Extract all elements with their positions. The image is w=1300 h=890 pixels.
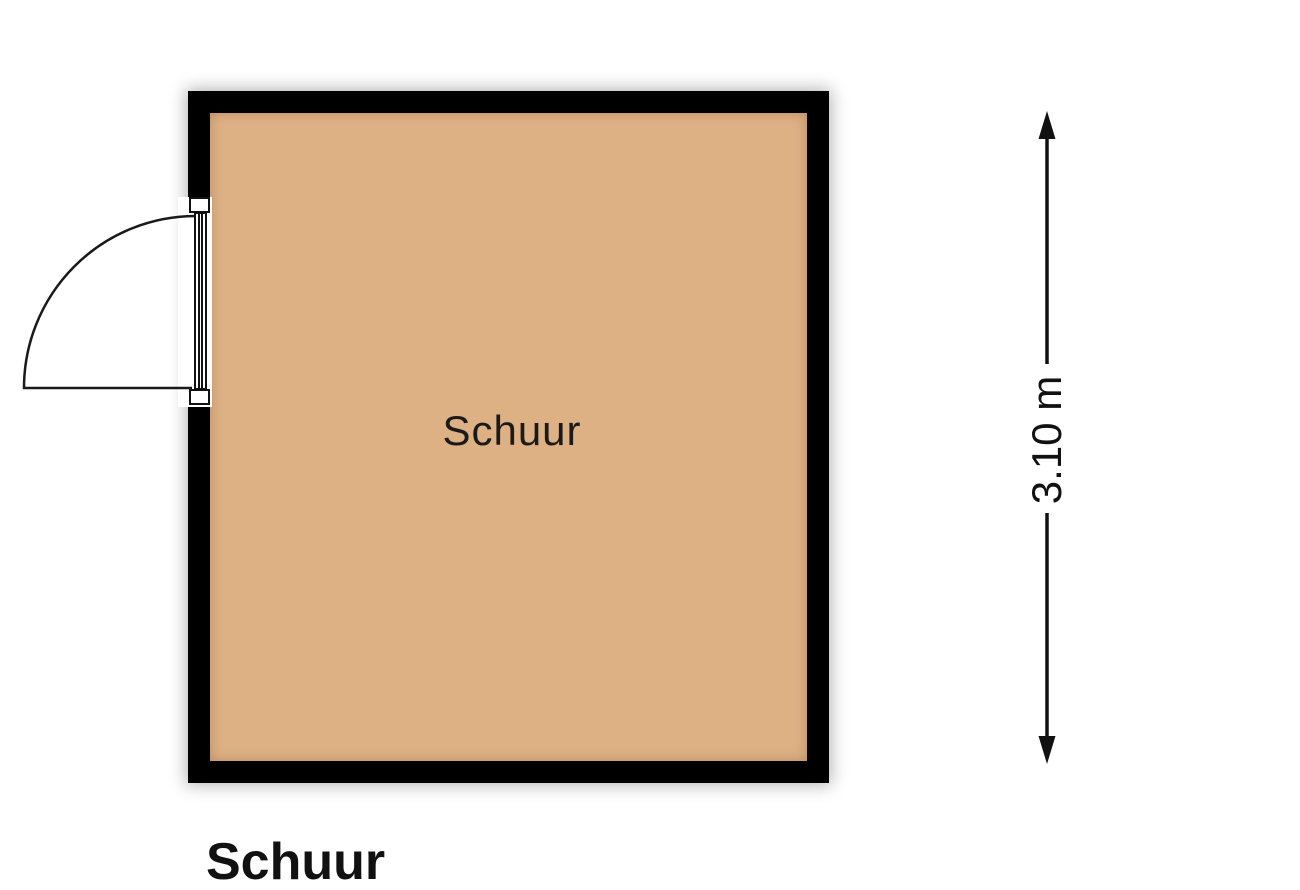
dimension-label: 3.10 m bbox=[1024, 360, 1070, 520]
arrow-head-down-icon bbox=[1039, 736, 1056, 764]
arrow-head-up-icon bbox=[1039, 111, 1056, 139]
floor-plan: Schuur 3.10 m Schuur bbox=[0, 0, 1300, 890]
door-swing-arc bbox=[24, 216, 195, 388]
plan-title: Schuur bbox=[206, 836, 385, 888]
room-label: Schuur bbox=[362, 407, 662, 455]
